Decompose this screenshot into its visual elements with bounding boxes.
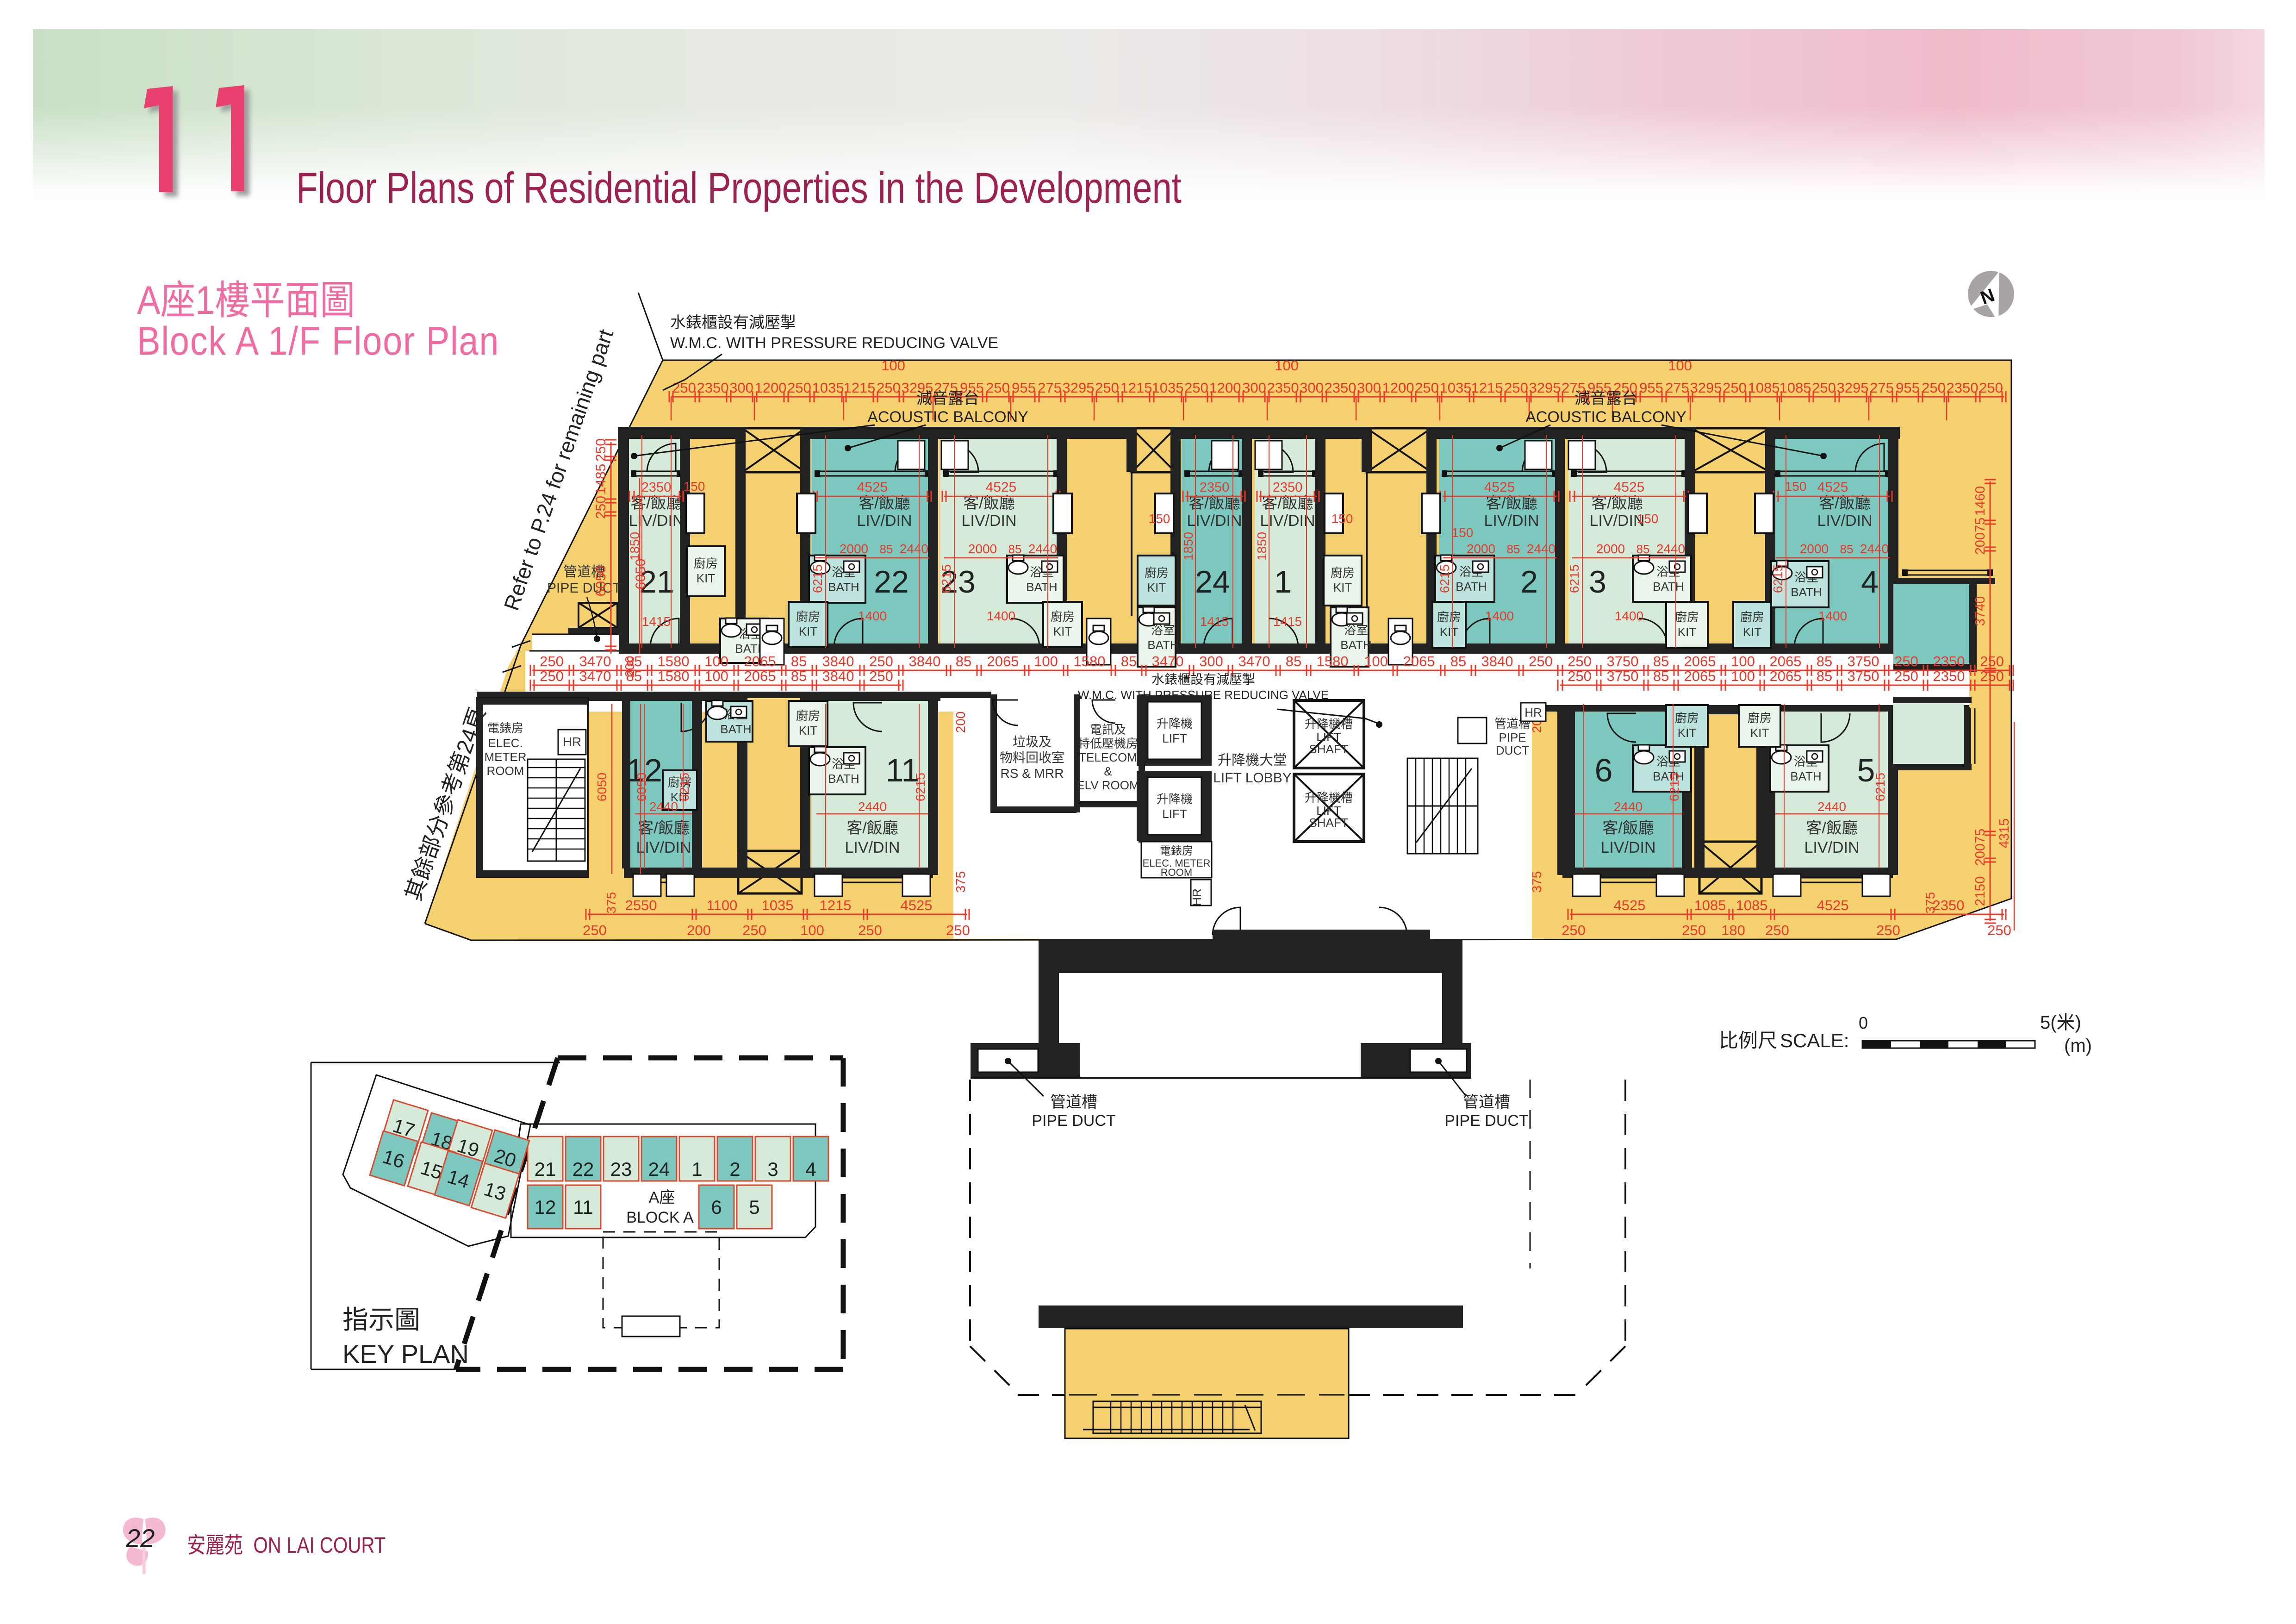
svg-text:250: 250 — [1894, 668, 1918, 684]
svg-text:2: 2 — [1520, 564, 1538, 600]
svg-text:SHAFT: SHAFT — [1309, 816, 1348, 830]
svg-text:1215: 1215 — [1120, 380, 1152, 396]
svg-text:20075: 20075 — [1973, 518, 1988, 555]
svg-text:2440: 2440 — [1817, 800, 1846, 814]
svg-text:2350: 2350 — [1200, 480, 1230, 495]
svg-text:KIT: KIT — [1333, 581, 1352, 594]
svg-text:6215: 6215 — [1437, 564, 1452, 593]
svg-text:85: 85 — [1450, 653, 1466, 669]
svg-text:250: 250 — [1987, 922, 2011, 938]
svg-text:KIT: KIT — [1743, 625, 1762, 639]
svg-text:6215: 6215 — [1667, 773, 1681, 801]
svg-text:廚房: 廚房 — [1051, 610, 1075, 624]
svg-text:PIPE DUCT: PIPE DUCT — [1444, 1112, 1528, 1130]
svg-text:2350: 2350 — [1267, 380, 1299, 396]
svg-text:3470: 3470 — [1238, 653, 1270, 669]
svg-text:KIT: KIT — [697, 571, 716, 585]
svg-text:1850: 1850 — [1255, 532, 1269, 561]
svg-text:11: 11 — [573, 1196, 593, 1218]
svg-text:1400: 1400 — [1485, 609, 1514, 623]
svg-text:(m): (m) — [2064, 1036, 2092, 1056]
svg-text:BATH: BATH — [1147, 638, 1178, 652]
svg-text:ROOM: ROOM — [1161, 867, 1192, 878]
svg-text:250: 250 — [877, 380, 901, 396]
svg-text:3: 3 — [767, 1158, 778, 1180]
svg-text:3750: 3750 — [1607, 653, 1639, 669]
svg-text:2065: 2065 — [1770, 668, 1802, 684]
svg-text:250: 250 — [869, 668, 893, 684]
svg-text:250: 250 — [593, 496, 609, 519]
svg-text:KEY PLAN: KEY PLAN — [342, 1339, 469, 1368]
svg-text:減音露台: 減音露台 — [916, 390, 979, 407]
svg-text:3470: 3470 — [1152, 653, 1184, 669]
svg-text:廚房: 廚房 — [1675, 610, 1699, 624]
svg-text:85: 85 — [791, 653, 807, 669]
svg-text:1100: 1100 — [707, 897, 738, 913]
svg-text:85: 85 — [1840, 542, 1854, 556]
svg-text:1400: 1400 — [1818, 609, 1847, 623]
svg-text:1200: 1200 — [755, 380, 787, 396]
svg-text:BATH: BATH — [1790, 769, 1821, 783]
svg-text:85: 85 — [880, 542, 893, 556]
svg-text:20075: 20075 — [1973, 829, 1988, 866]
svg-text:指示圖: 指示圖 — [342, 1305, 420, 1334]
svg-text:2065: 2065 — [744, 668, 776, 684]
svg-text:KIT: KIT — [1440, 625, 1459, 639]
svg-text:150: 150 — [1149, 512, 1170, 526]
svg-text:客/飯廳: 客/飯廳 — [963, 494, 1014, 512]
svg-text:KIT: KIT — [799, 625, 818, 638]
svg-text:HR: HR — [1190, 888, 1204, 906]
svg-text:客/飯廳: 客/飯廳 — [1486, 494, 1537, 512]
svg-text:2440: 2440 — [1527, 542, 1556, 556]
svg-text:1580: 1580 — [1074, 653, 1106, 669]
svg-text:1415: 1415 — [1273, 614, 1302, 629]
svg-text:3295: 3295 — [1690, 380, 1722, 396]
svg-text:6: 6 — [711, 1196, 722, 1218]
svg-text:LIV/DIN: LIV/DIN — [1804, 839, 1859, 856]
svg-text:2065: 2065 — [987, 653, 1019, 669]
svg-text:6215: 6215 — [1567, 564, 1581, 593]
svg-text:水錶櫃設有減壓掣: 水錶櫃設有減壓掣 — [670, 314, 796, 331]
svg-text:6215: 6215 — [913, 773, 927, 801]
svg-text:管道槽: 管道槽 — [1463, 1093, 1510, 1111]
svg-text:250: 250 — [858, 922, 882, 938]
svg-text:250: 250 — [1095, 380, 1119, 396]
svg-text:2000: 2000 — [1596, 542, 1625, 556]
svg-text:1085: 1085 — [1694, 897, 1726, 913]
svg-text:客/飯廳: 客/飯廳 — [1806, 819, 1857, 837]
svg-text:22: 22 — [874, 564, 909, 600]
svg-text:LIV/DIN: LIV/DIN — [628, 512, 684, 530]
svg-text:4315: 4315 — [1997, 818, 2012, 849]
svg-text:250: 250 — [1876, 922, 1900, 938]
svg-text:LIV/DIN: LIV/DIN — [1484, 512, 1539, 530]
svg-text:1850: 1850 — [1181, 532, 1195, 561]
svg-text:100: 100 — [704, 653, 728, 669]
svg-text:升降機槽: 升降機槽 — [1305, 791, 1353, 805]
svg-text:1200: 1200 — [1382, 380, 1414, 396]
svg-text:250: 250 — [583, 922, 607, 938]
svg-text:0: 0 — [1859, 1013, 1868, 1032]
svg-text:HR: HR — [563, 735, 581, 749]
svg-text:升降機: 升降機 — [1157, 717, 1193, 731]
svg-text:6: 6 — [1595, 752, 1613, 788]
svg-text:2440: 2440 — [1614, 800, 1643, 814]
svg-text:HR: HR — [1524, 706, 1542, 719]
svg-text:250: 250 — [672, 380, 696, 396]
svg-text:85: 85 — [1121, 653, 1137, 669]
svg-text:85: 85 — [956, 653, 971, 669]
svg-text:85: 85 — [1008, 542, 1022, 556]
svg-text:特低壓機房: 特低壓機房 — [1078, 737, 1138, 750]
svg-text:LIFT LOBBY: LIFT LOBBY — [1213, 770, 1292, 786]
svg-text:2440: 2440 — [858, 800, 887, 814]
svg-text:客/飯廳: 客/飯廳 — [859, 494, 910, 512]
svg-text:3840: 3840 — [909, 653, 941, 669]
svg-text:100: 100 — [1034, 653, 1058, 669]
svg-text:ACOUSTIC BALCONY: ACOUSTIC BALCONY — [867, 408, 1028, 426]
svg-text:300: 300 — [1199, 653, 1223, 669]
svg-text:150: 150 — [1785, 479, 1807, 493]
svg-text:1580: 1580 — [1317, 653, 1349, 669]
svg-text:LIV/DIN: LIV/DIN — [845, 839, 900, 856]
svg-text:200: 200 — [687, 922, 711, 938]
svg-text:4525: 4525 — [1817, 480, 1848, 495]
svg-text:3840: 3840 — [1481, 653, 1513, 669]
svg-text:85: 85 — [1507, 542, 1520, 556]
svg-text:3750: 3750 — [1848, 653, 1879, 669]
svg-text:BATH: BATH — [720, 722, 751, 736]
svg-text:4: 4 — [1861, 564, 1879, 600]
svg-text:客/飯廳: 客/飯廳 — [638, 819, 689, 837]
svg-text:85: 85 — [791, 668, 807, 684]
svg-text:1415: 1415 — [1200, 614, 1229, 629]
svg-text:廚房: 廚房 — [796, 709, 820, 723]
svg-text:物料回收室: 物料回收室 — [1000, 750, 1064, 765]
svg-text:200: 200 — [622, 656, 637, 678]
svg-text:250: 250 — [593, 438, 609, 462]
svg-text:6215: 6215 — [677, 773, 691, 801]
svg-text:電錶房: 電錶房 — [1160, 845, 1193, 857]
svg-text:1215: 1215 — [820, 897, 852, 913]
svg-text:250: 250 — [1184, 380, 1208, 396]
svg-text:250: 250 — [946, 922, 970, 938]
svg-text:3470: 3470 — [579, 668, 611, 684]
svg-text:200: 200 — [953, 712, 968, 733]
svg-text:250: 250 — [1682, 922, 1706, 938]
svg-text:250: 250 — [1568, 653, 1592, 669]
svg-text:6215: 6215 — [939, 564, 953, 593]
svg-text:250: 250 — [1529, 653, 1553, 669]
svg-text:比例尺: 比例尺 — [1719, 1030, 1777, 1051]
svg-text:250: 250 — [1922, 380, 1946, 396]
svg-text:廚房: 廚房 — [1740, 610, 1764, 624]
svg-text:100: 100 — [1275, 357, 1299, 374]
svg-text:3470: 3470 — [579, 653, 611, 669]
svg-text:180: 180 — [1721, 922, 1745, 938]
svg-text:管道槽: 管道槽 — [1050, 1093, 1097, 1111]
svg-text:1580: 1580 — [658, 668, 690, 684]
svg-text:4525: 4525 — [1484, 480, 1515, 495]
svg-text:24: 24 — [648, 1158, 670, 1180]
svg-text:DUCT: DUCT — [1496, 743, 1529, 757]
svg-text:3750: 3750 — [1607, 668, 1639, 684]
svg-text:1200: 1200 — [1209, 380, 1241, 396]
svg-text:BATH: BATH — [1026, 580, 1057, 594]
svg-text:2: 2 — [729, 1158, 740, 1180]
svg-text:6215: 6215 — [1771, 564, 1785, 593]
svg-text:廚房: 廚房 — [1748, 711, 1772, 725]
svg-text:5: 5 — [1857, 752, 1875, 788]
svg-text:客/飯廳: 客/飯廳 — [630, 494, 682, 512]
svg-text:PIPE: PIPE — [1499, 731, 1526, 744]
svg-text:21: 21 — [535, 1158, 556, 1180]
svg-text:1460: 1460 — [1973, 486, 1988, 516]
svg-text:KIT: KIT — [1053, 625, 1072, 638]
svg-text:250: 250 — [1980, 653, 2004, 669]
svg-text:3295: 3295 — [1063, 380, 1095, 396]
svg-text:BATH: BATH — [1653, 580, 1684, 593]
svg-text:ELV ROOM: ELV ROOM — [1076, 778, 1139, 792]
svg-text:250: 250 — [1415, 380, 1439, 396]
svg-text:250: 250 — [869, 653, 893, 669]
svg-text:2000: 2000 — [1467, 542, 1495, 556]
svg-text:150: 150 — [1637, 512, 1659, 526]
svg-text:ACOUSTIC BALCONY: ACOUSTIC BALCONY — [1525, 408, 1686, 426]
svg-text:TELECOM: TELECOM — [1079, 750, 1137, 764]
svg-text:100: 100 — [1731, 668, 1755, 684]
svg-text:RS & MRR: RS & MRR — [1001, 766, 1064, 781]
svg-text:2065: 2065 — [744, 653, 776, 669]
svg-text:1850: 1850 — [628, 532, 642, 561]
svg-text:LIV/DIN: LIV/DIN — [1817, 512, 1872, 530]
svg-text:KIT: KIT — [799, 724, 818, 737]
svg-text:3840: 3840 — [822, 668, 854, 684]
svg-text:1035: 1035 — [1152, 380, 1184, 396]
svg-text:升降機: 升降機 — [1157, 792, 1193, 806]
svg-text:2440: 2440 — [1860, 542, 1889, 556]
svg-text:4525: 4525 — [857, 480, 888, 495]
svg-text:6215: 6215 — [1873, 773, 1887, 801]
svg-text:250: 250 — [1765, 922, 1789, 938]
svg-text:250: 250 — [742, 922, 766, 938]
svg-text:1: 1 — [691, 1158, 702, 1180]
svg-text:2350: 2350 — [1933, 668, 1965, 684]
svg-text:250: 250 — [787, 380, 811, 396]
svg-text:300: 300 — [1357, 380, 1381, 396]
svg-text:3: 3 — [1589, 564, 1606, 600]
svg-text:ELEC.: ELEC. — [488, 736, 523, 750]
svg-text:23: 23 — [610, 1158, 632, 1180]
svg-text:1085: 1085 — [1748, 380, 1780, 396]
svg-text:垃圾及: 垃圾及 — [1013, 735, 1052, 749]
svg-text:1400: 1400 — [987, 609, 1015, 623]
svg-text:100: 100 — [1731, 653, 1755, 669]
svg-text:375: 375 — [1530, 871, 1544, 893]
svg-text:150: 150 — [1332, 512, 1353, 526]
svg-text:1580: 1580 — [658, 653, 690, 669]
svg-text:廚房: 廚房 — [1675, 711, 1699, 725]
svg-text:2350: 2350 — [697, 380, 729, 396]
svg-text:2065: 2065 — [1403, 653, 1435, 669]
svg-text:250: 250 — [540, 668, 564, 684]
svg-text:1035: 1035 — [762, 897, 794, 913]
svg-text:3840: 3840 — [822, 653, 854, 669]
svg-text:2440: 2440 — [649, 800, 678, 814]
svg-text:5(米): 5(米) — [2040, 1012, 2081, 1033]
svg-text:2440: 2440 — [1656, 542, 1685, 556]
svg-text:PIPE DUCT: PIPE DUCT — [1032, 1112, 1115, 1130]
svg-text:BATH: BATH — [828, 580, 859, 594]
svg-text:150: 150 — [1452, 525, 1474, 540]
svg-text:1085: 1085 — [1780, 380, 1811, 396]
svg-text:廚房: 廚房 — [1437, 610, 1461, 624]
svg-text:6050: 6050 — [635, 773, 649, 801]
svg-text:BATH: BATH — [1791, 585, 1822, 599]
svg-text:6050: 6050 — [593, 566, 609, 597]
svg-text:100: 100 — [1364, 653, 1388, 669]
svg-text:250: 250 — [986, 380, 1010, 396]
svg-text:2350: 2350 — [1273, 480, 1303, 495]
svg-text:2000: 2000 — [1800, 542, 1829, 556]
svg-text:4525: 4525 — [1614, 480, 1645, 495]
svg-text:1215: 1215 — [844, 380, 876, 396]
svg-text:廚房: 廚房 — [796, 610, 820, 624]
svg-text:955: 955 — [1896, 380, 1920, 396]
svg-text:KIT: KIT — [1678, 625, 1697, 639]
svg-text:2440: 2440 — [900, 542, 928, 556]
svg-text:2440: 2440 — [1028, 542, 1057, 556]
svg-text:275: 275 — [1665, 380, 1689, 396]
svg-text:300: 300 — [1300, 380, 1324, 396]
svg-text:150: 150 — [684, 479, 705, 493]
svg-text:客/飯廳: 客/飯廳 — [1819, 494, 1870, 512]
svg-text:300: 300 — [1242, 380, 1266, 396]
svg-text:85: 85 — [1817, 668, 1832, 684]
svg-text:LIV/DIN: LIV/DIN — [961, 512, 1016, 530]
svg-text:6050: 6050 — [633, 559, 648, 590]
svg-text:2550: 2550 — [625, 897, 657, 913]
svg-text:250: 250 — [1812, 380, 1836, 396]
svg-text:BATH: BATH — [1456, 580, 1487, 593]
svg-text:100: 100 — [881, 357, 905, 374]
svg-text:W.M.C. WITH PRESSURE REDUCING: W.M.C. WITH PRESSURE REDUCING VALVE — [1078, 688, 1329, 702]
svg-text:22: 22 — [572, 1158, 594, 1180]
svg-text:廚房: 廚房 — [1145, 566, 1169, 580]
svg-text:6215: 6215 — [810, 564, 825, 593]
svg-text:100: 100 — [704, 668, 728, 684]
svg-text:KIT: KIT — [1147, 581, 1166, 594]
svg-text:BLOCK A: BLOCK A — [626, 1209, 694, 1226]
svg-text:1400: 1400 — [858, 609, 887, 623]
svg-text:375: 375 — [953, 871, 968, 893]
svg-text:METER: METER — [485, 750, 527, 764]
svg-text:85: 85 — [1286, 653, 1301, 669]
svg-text:300: 300 — [729, 380, 753, 396]
svg-text:PIPE DUCT: PIPE DUCT — [547, 581, 621, 596]
svg-text:85: 85 — [1653, 668, 1669, 684]
svg-text:客/飯廳: 客/飯廳 — [846, 819, 898, 837]
svg-text:BATH: BATH — [828, 772, 859, 786]
svg-text:LIV/DIN: LIV/DIN — [857, 512, 912, 530]
svg-text:LIV/DIN: LIV/DIN — [1600, 839, 1655, 856]
svg-text:3750: 3750 — [1848, 668, 1879, 684]
svg-text:SHAFT: SHAFT — [1309, 742, 1348, 756]
svg-text:2065: 2065 — [1684, 668, 1716, 684]
svg-text:4: 4 — [805, 1158, 816, 1180]
svg-text:12: 12 — [535, 1196, 556, 1218]
svg-text:275: 275 — [1870, 380, 1894, 396]
svg-text:2150: 2150 — [1973, 876, 1988, 906]
svg-text:減音露台: 減音露台 — [1574, 390, 1637, 407]
svg-text:24: 24 — [1195, 564, 1230, 600]
svg-text:1085: 1085 — [1736, 897, 1768, 913]
svg-text:廚房: 廚房 — [1331, 566, 1355, 580]
svg-text:客/飯廳: 客/飯廳 — [1602, 819, 1654, 837]
svg-text:2350: 2350 — [1947, 380, 1979, 396]
svg-text:1415: 1415 — [642, 614, 671, 629]
svg-text:ROOM: ROOM — [487, 764, 524, 778]
svg-text:250: 250 — [1979, 380, 2003, 396]
svg-text:4525: 4525 — [1614, 897, 1646, 913]
svg-text:W.M.C. WITH PRESSURE REDUCING: W.M.C. WITH PRESSURE REDUCING VALVE — [670, 334, 998, 352]
svg-text:6050: 6050 — [595, 773, 609, 801]
svg-text:85: 85 — [1653, 653, 1669, 669]
svg-text:375: 375 — [1923, 892, 1937, 914]
svg-text:1: 1 — [1274, 564, 1292, 600]
svg-text:2350: 2350 — [1325, 380, 1356, 396]
svg-text:2065: 2065 — [1684, 653, 1716, 669]
svg-text:5: 5 — [749, 1196, 759, 1218]
svg-text:1400: 1400 — [1615, 609, 1643, 623]
svg-text:2350: 2350 — [1933, 653, 1965, 669]
svg-text:2065: 2065 — [1770, 653, 1802, 669]
svg-text:1035: 1035 — [1440, 380, 1472, 396]
svg-text:85: 85 — [1817, 653, 1832, 669]
svg-text:250: 250 — [1980, 668, 2004, 684]
svg-text:250: 250 — [1723, 380, 1747, 396]
svg-text:250: 250 — [1504, 380, 1528, 396]
svg-text:電訊及: 電訊及 — [1090, 723, 1126, 737]
svg-text:2000: 2000 — [968, 542, 997, 556]
svg-text:LIFT: LIFT — [1162, 807, 1187, 821]
svg-text:3740: 3740 — [1973, 596, 1988, 626]
svg-text:250: 250 — [1562, 922, 1586, 938]
svg-text:KIT: KIT — [1750, 726, 1769, 740]
svg-text:4525: 4525 — [901, 897, 933, 913]
svg-text:3295: 3295 — [1837, 380, 1869, 396]
svg-text:375: 375 — [604, 892, 618, 914]
svg-text:KIT: KIT — [1678, 726, 1697, 740]
svg-text:1215: 1215 — [1471, 380, 1503, 396]
svg-text:85: 85 — [1636, 542, 1650, 556]
svg-text:升降機大堂: 升降機大堂 — [1218, 753, 1287, 768]
svg-text:A座: A座 — [649, 1189, 675, 1206]
svg-text:1035: 1035 — [812, 380, 844, 396]
svg-text:廚房: 廚房 — [694, 556, 718, 570]
svg-text:2350: 2350 — [641, 480, 672, 495]
svg-text:1485: 1485 — [593, 464, 609, 495]
svg-text:955: 955 — [1639, 380, 1663, 396]
svg-text:電錶房: 電錶房 — [487, 721, 523, 735]
svg-text:100: 100 — [1668, 357, 1692, 374]
svg-text:4525: 4525 — [986, 480, 1017, 495]
svg-text:250: 250 — [540, 653, 564, 669]
svg-text:客/飯廳: 客/飯廳 — [1591, 494, 1643, 512]
svg-text:955: 955 — [1012, 380, 1036, 396]
svg-text:LIFT: LIFT — [1162, 731, 1187, 745]
